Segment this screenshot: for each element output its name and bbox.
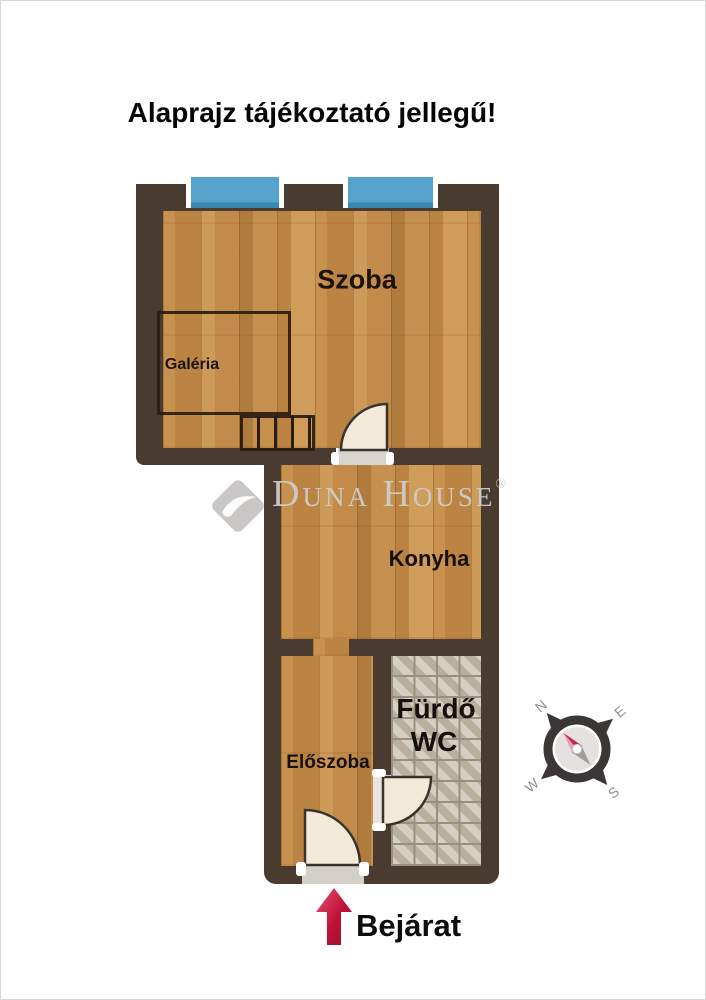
door-jamb — [359, 862, 369, 876]
door-arc-icon — [383, 777, 431, 825]
entrance-label: Bejárat — [356, 908, 461, 944]
room-label-furdo: Fürdő — [396, 693, 475, 725]
room-label-galeria: Galéria — [165, 356, 219, 374]
door-jamb — [386, 452, 394, 465]
watermark-brand-text: Duna House — [272, 473, 495, 515]
watermark-brand: Duna House® — [272, 475, 506, 513]
room-label-eloszoba: Előszoba — [286, 752, 369, 774]
registered-mark: ® — [495, 477, 506, 492]
door-jamb — [296, 862, 306, 876]
entrance-arrow-icon — [313, 885, 357, 951]
compass-icon: N E S W — [507, 679, 647, 819]
floorplan-image: Alaprajz tájékoztató jellegű! — [0, 0, 706, 1000]
duna-house-logo-icon — [204, 472, 272, 540]
compass-w: W — [522, 774, 543, 795]
room-label-konyha: Konyha — [389, 546, 470, 572]
compass-s: S — [605, 783, 622, 801]
room-label-szoba: Szoba — [317, 265, 397, 296]
door-jamb — [331, 452, 339, 465]
door-arc-icon — [305, 810, 360, 865]
room-label-wc: WC — [411, 726, 458, 758]
door-threshold — [302, 866, 364, 884]
door-jamb — [372, 823, 386, 831]
compass-e: E — [611, 702, 628, 720]
door-arc-icon — [341, 404, 387, 450]
door-jamb — [372, 769, 386, 777]
compass-n: N — [532, 696, 550, 715]
